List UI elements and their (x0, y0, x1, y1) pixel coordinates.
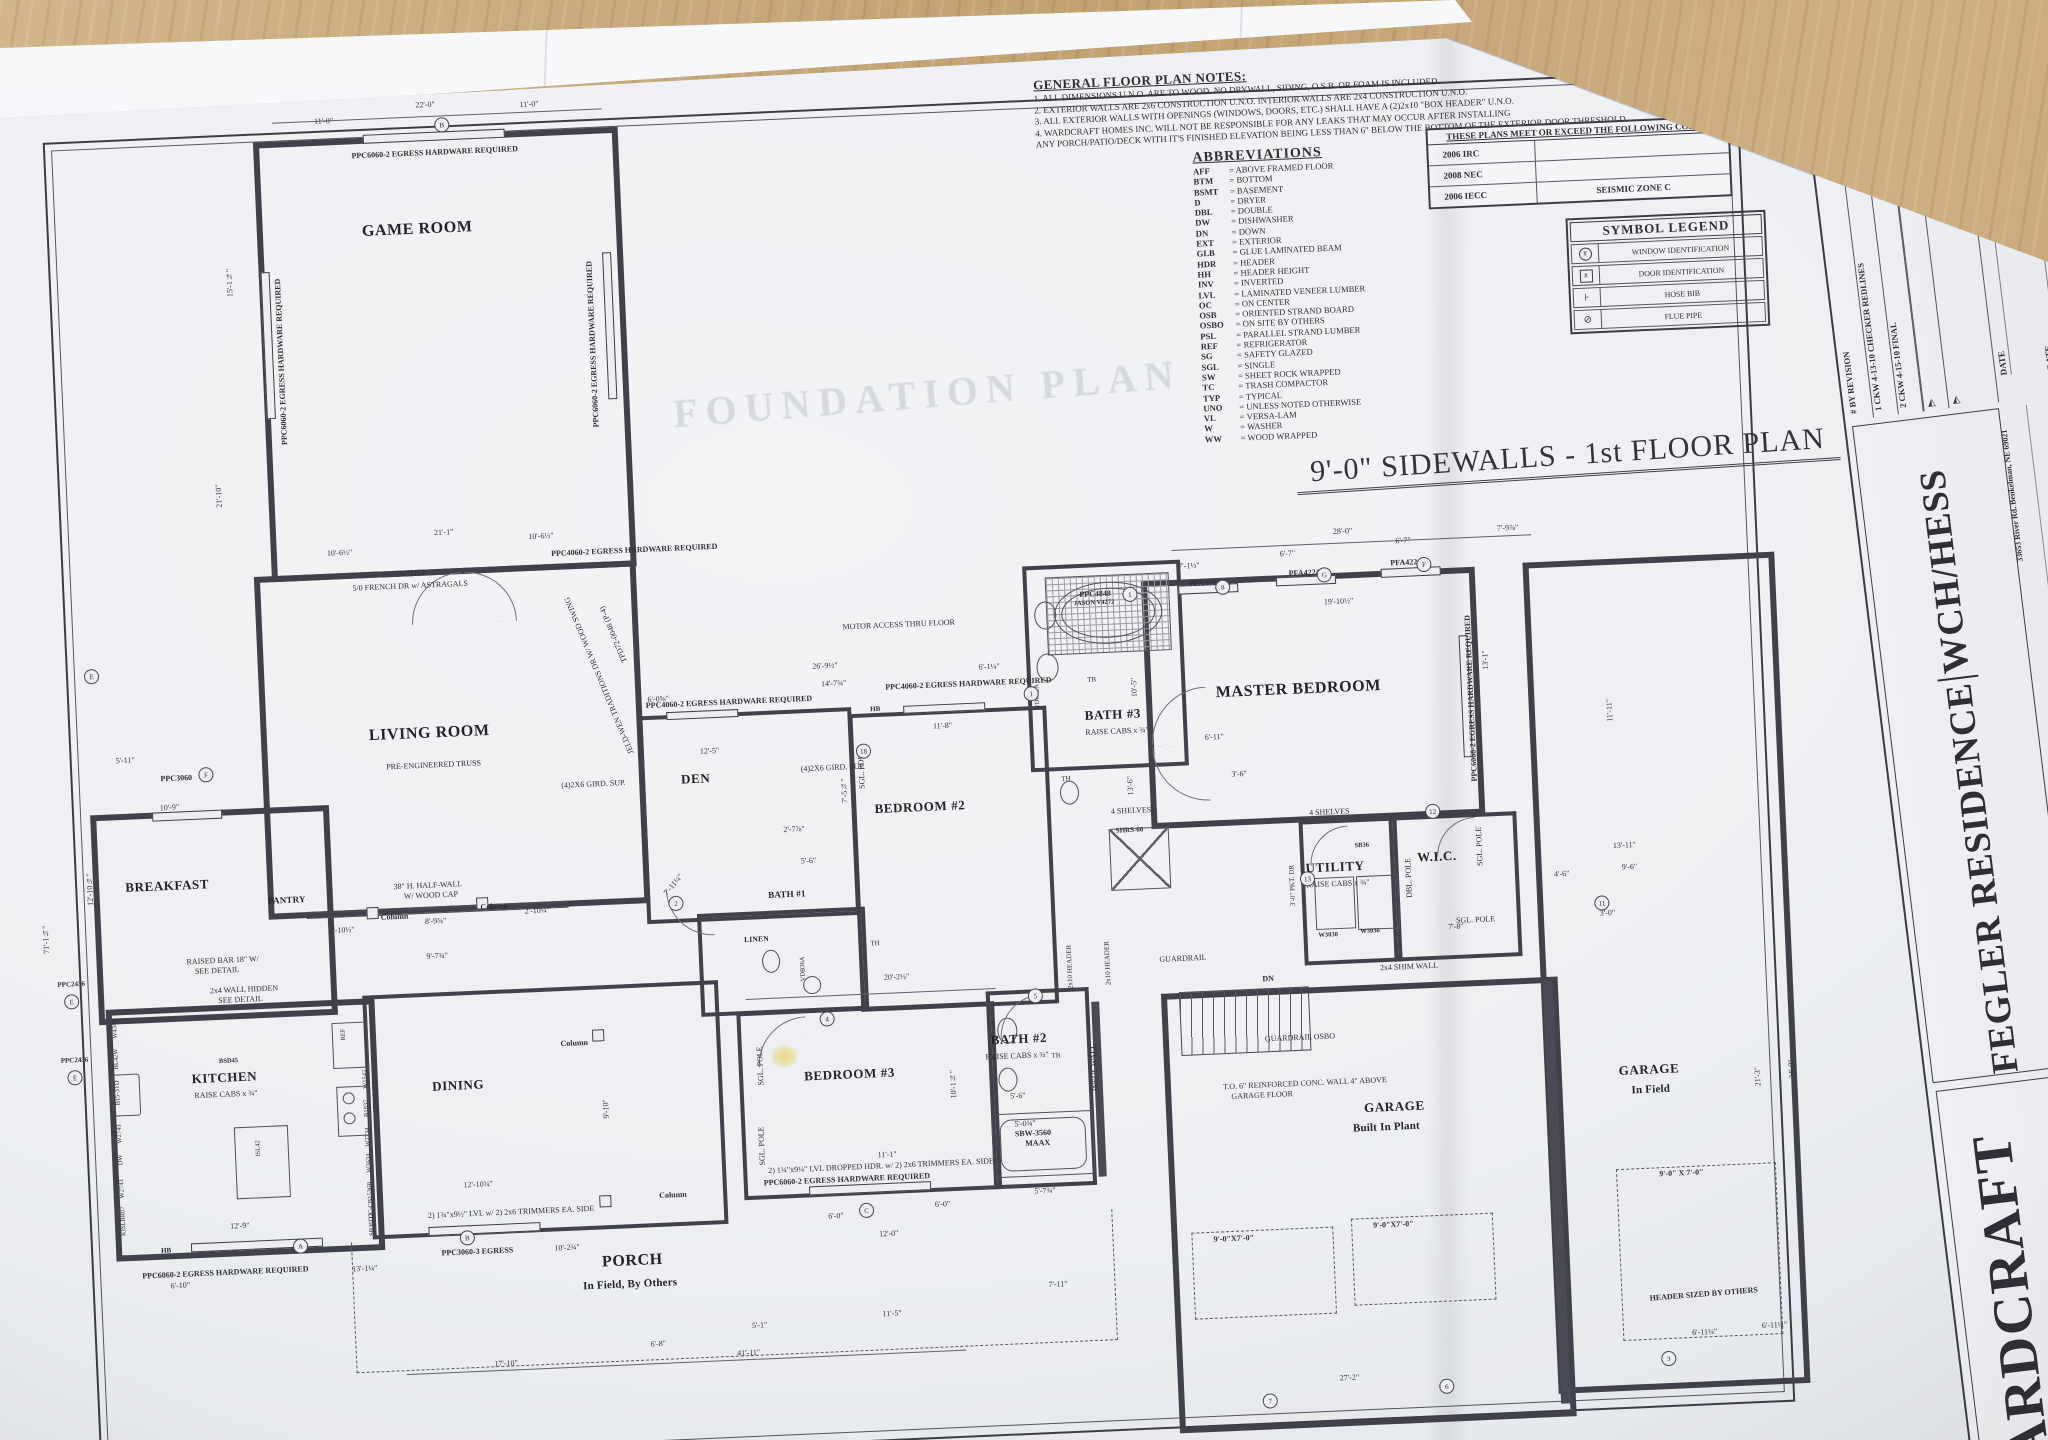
codes-table: THESE PLANS MEET OR EXCEED THE FOLLOWING… (1425, 115, 1732, 209)
room-label-utility: UTILITY (1305, 858, 1365, 877)
shower (1109, 826, 1172, 891)
dim-label: 5'-6" (801, 856, 817, 866)
cabinet-code: W2743 (118, 1179, 126, 1198)
room-label-bath3: BATH #3 (1084, 705, 1141, 723)
dim-label: 6'-0" (828, 1211, 844, 1221)
room-label-kitchen: KITCHEN (191, 1068, 257, 1087)
column-note: Column (480, 901, 508, 911)
dim-label: 11'-8" (933, 721, 952, 731)
dim-label: 9'-0"X7'-0" (1213, 1233, 1254, 1244)
dim-label: 12'-10¼" (85, 873, 95, 906)
symbol-legend: SYMBOL LEGEND #WINDOW IDENTIFICATION #DO… (1565, 210, 1770, 335)
window-code: PPC2436 (61, 1056, 89, 1065)
window-code: PPC2436 (57, 980, 85, 989)
column-post (599, 1195, 612, 1208)
room-label-dining: DINING (432, 1076, 485, 1094)
dim-label: 21'-10" (214, 484, 224, 508)
dim-label: 11'-0" (519, 99, 538, 109)
hose-bib-mark: HB (870, 705, 880, 713)
cabinet-code: BL42W (112, 1048, 120, 1069)
dim-label: 6'-0" (935, 1199, 951, 1209)
stairs (1179, 986, 1312, 1056)
tb-mark: TB (1051, 1051, 1060, 1059)
dim-label: 6'-7" (1395, 536, 1411, 546)
dim-label: 14'-7¾" (821, 678, 847, 688)
dim-label: 21'-1" (434, 527, 454, 537)
column-note: Column (560, 1038, 588, 1048)
room-label-linen: LINEN (744, 934, 769, 944)
room-label-bath2: BATH #2 (990, 1030, 1047, 1048)
th-mark: TH (1061, 775, 1071, 783)
dim-label: 15'-1¼" (224, 269, 234, 298)
window-door-id: E (67, 1070, 83, 1086)
dim-label: 6'-7" (1280, 549, 1296, 559)
dim-label: 10'-6½" (528, 531, 554, 541)
dim-label: 7'-5¼" (839, 778, 849, 803)
door-note-active: ACTIVE (398, 568, 428, 578)
dim-label: 10'-2¾" (554, 1242, 580, 1252)
dim-label: 5'-7¾" (1034, 1186, 1056, 1196)
dim-label: 10'-5" (1129, 678, 1139, 698)
dim-label: 7'-8" (1448, 922, 1464, 932)
revision-delta-icon: ◭ (1927, 397, 1936, 409)
dim-label: 10'-9" (160, 803, 180, 813)
cabinet-code: REF (340, 1028, 348, 1040)
dim-label: 13'-1¼" (352, 1263, 378, 1273)
dim-label: 2'-10¼" (524, 905, 550, 915)
dim-label: 10'-1¼" (948, 1070, 958, 1099)
cabinet-code: W4343 (111, 1019, 119, 1038)
dim-label: 2'-10½" (329, 925, 355, 935)
dim-label: 6'-11¼" (1692, 1327, 1717, 1337)
tub-code: SBW-3560 (1015, 1128, 1052, 1139)
dim-label: 28'-0" (1333, 526, 1353, 536)
window-door-id: E (64, 994, 80, 1010)
blueprint-sheet: FOUNDATION PLAN GENERAL FLOOR PLAN NOTES… (0, 0, 2048, 1440)
room-label-den: DEN (681, 770, 711, 787)
dim-label: 11'-11" (1604, 699, 1614, 722)
room-label-wic: W.I.C. (1417, 848, 1457, 866)
dim-label: 12'-0" (879, 1229, 899, 1239)
cabinet-code: SB36 (1354, 842, 1369, 850)
shelves-note: 4 SHELVES (1309, 806, 1350, 817)
room-label-pantry: PANTRY (268, 894, 306, 906)
column-post (366, 907, 379, 920)
dim-label: 27'-2" (1340, 1373, 1360, 1383)
dim-label: 5'-0¾" (1014, 1118, 1036, 1128)
room-label-porch: PORCH (602, 1251, 664, 1272)
dim-label: 13'-1" (1480, 650, 1490, 670)
dim-label: 5'-11" (116, 755, 135, 765)
revision-delta-icon: ◭ (1952, 394, 1961, 406)
dim-label: 4'-6" (1554, 869, 1570, 879)
room-label-garage-field: GARAGE (1618, 1060, 1679, 1079)
blueprint-photo: FOUNDATION PLAN GENERAL FLOOR PLAN NOTES… (0, 0, 2048, 1440)
dim-label: 5'-6" (1010, 1091, 1026, 1101)
cabinet-code: W3030 (1318, 931, 1338, 939)
dim-label: 7'-1½" (1178, 561, 1200, 571)
cabinet-code: W1542 (361, 1069, 369, 1088)
client-name: WCH/HESS (1911, 467, 1977, 682)
dim-label: 9'-10" (601, 1099, 611, 1119)
dim-label: 11'-1" (877, 1150, 896, 1160)
down-note: DN (1262, 974, 1274, 983)
window-id-icon: # (1578, 247, 1592, 261)
wall-bedroom2 (848, 706, 1059, 1012)
project-name: FEGLER RESIDENCEWCH/HESS (1904, 416, 2027, 1076)
shower-code: SHRS-60 (1116, 825, 1144, 834)
hose-bib-icon: ⊦ (1584, 292, 1590, 303)
cabinet-code: W3634 (365, 1153, 373, 1172)
dim-label: 22'-0" (415, 100, 435, 110)
window-code: PFA4224 (1288, 568, 1319, 578)
company-name: WARDCRAFT (1953, 1082, 2048, 1440)
tub-code: MAAX (1025, 1138, 1050, 1148)
dim-label: 13'-11½" (370, 1081, 380, 1113)
dim-label: 10'-6½" (327, 548, 353, 558)
cabinet-code: W2743 (116, 1124, 124, 1143)
pole-note: SGL. POLE (755, 1046, 766, 1085)
pole-note: SGL. POLE (756, 1126, 767, 1165)
dim-label: 12'-9" (230, 1221, 250, 1231)
dim-label: 41'-11" (737, 1348, 760, 1358)
refrigerator (331, 1021, 369, 1069)
dim-label: 13'-11" (1613, 840, 1636, 850)
cabinet-code: BSD45 (219, 1057, 238, 1065)
dim-label: 6'-0⅝" (647, 694, 669, 704)
cabinet-code: ISL42 (254, 1140, 262, 1157)
wall-dining (362, 980, 728, 1239)
raised-bar-note: SEE DETAIL (195, 965, 240, 976)
dim-label: 11'-5" (882, 1308, 901, 1318)
dim-label: 9'-6" (1622, 862, 1638, 872)
abbreviations: ABBREVIATIONS AFF= ABOVE FRAMED FLOORBTM… (1192, 140, 1445, 444)
cabinet-code: KISLBR07 (119, 1206, 127, 1236)
dim-label: 20'-2½" (884, 972, 910, 982)
floor-plan-drawing: FOUNDATION PLAN GENERAL FLOOR PLAN NOTES… (0, 0, 2048, 1440)
pole-note: DBL. POLE (1403, 858, 1414, 898)
column-post (592, 1029, 605, 1042)
dim-label: 6'-1¼" (978, 662, 1000, 672)
dim-label: 19'-10½" (1324, 596, 1354, 606)
dim-label: 12'-5" (700, 746, 720, 756)
wall-bath1 (697, 907, 869, 1017)
cabinet-code: B1837 (363, 1099, 371, 1117)
column-note: Column (381, 912, 409, 922)
room-label-garage-built: GARAGE (1364, 1097, 1425, 1116)
dim-label: 5'-1" (752, 1320, 768, 1330)
dim-label: 8'-9¾" (425, 916, 447, 926)
dim-label: 9'-7¾" (426, 951, 448, 961)
dim-label: 3'-6" (1231, 769, 1247, 779)
room-sub-garage-field: In Field (1631, 1083, 1670, 1097)
cabinet-code: W3036 (1360, 927, 1380, 935)
th-mark: TH (870, 939, 880, 947)
dim-label: 6'-11" (1205, 732, 1224, 742)
dim-label: 6'-10" (170, 1280, 190, 1290)
pole-note: SGL. POLE (1474, 827, 1485, 866)
dim-label: 7'-9⅞" (1497, 523, 1519, 533)
dim-label: 6'-11¼" (1762, 1320, 1787, 1330)
dim-label: 17'-10" (494, 1358, 518, 1368)
window-code: PPC3060 (160, 773, 192, 783)
window-code: PPC4848 (1079, 589, 1111, 599)
hose-bib-mark: HB (161, 1246, 171, 1254)
room-label-bath1: BATH #1 (768, 888, 806, 900)
shelves-note: 4 SHELVES (1111, 805, 1152, 816)
dim-label: 7'-11" (1048, 1279, 1067, 1289)
dim-label: 13'-6" (1125, 776, 1135, 796)
cabinet-code: B15-3TD (114, 1080, 122, 1105)
cabinet-code: W2734 (364, 1127, 372, 1146)
door-id-icon: # (1579, 269, 1593, 283)
kitchen-island (234, 1125, 291, 1199)
dim-label: 12'-10¾" (463, 1179, 493, 1189)
tb-mark: TB (1087, 675, 1096, 683)
flue-pipe-icon: ⊘ (1583, 314, 1592, 325)
column-note: Column (659, 1190, 687, 1200)
dim-label: 21'-3" (1753, 1067, 1763, 1087)
cabinet-code: DW (117, 1154, 124, 1165)
dim-label: 9'-0"X7'-0" (1373, 1219, 1414, 1230)
vanity-code: VDB36A (799, 956, 807, 981)
dim-label: 71'-1¼" (41, 925, 51, 954)
dim-label: 6'-8" (650, 1339, 666, 1349)
dim-label: 24'-0" (1786, 1059, 1796, 1079)
dim-label: 26'-9½" (812, 661, 838, 671)
wall-game-room (253, 127, 637, 583)
cabinet-code: SB36D7 (368, 1213, 376, 1236)
dim-label: 11'-0" (314, 116, 333, 126)
garage-door-outline (1616, 1162, 1783, 1341)
dim-label: 2'-7⅞" (783, 824, 805, 834)
